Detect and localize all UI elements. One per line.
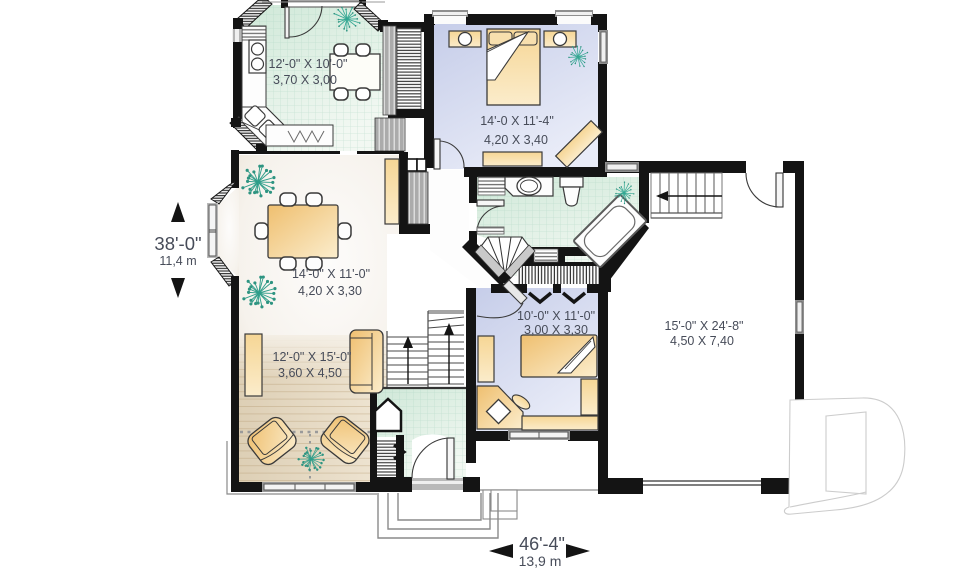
svg-text:10'-0" X 11'-0": 10'-0" X 11'-0" [517,309,595,323]
svg-text:11,4 m: 11,4 m [159,254,196,268]
svg-text:4,50 X 7,40: 4,50 X 7,40 [670,334,734,348]
svg-text:3,60 X 4,50: 3,60 X 4,50 [278,366,342,380]
svg-text:3,00 X 3,30: 3,00 X 3,30 [524,323,588,337]
svg-text:38'-0": 38'-0" [154,233,201,254]
svg-text:3,70 X 3,00: 3,70 X 3,00 [273,73,337,87]
svg-text:14'-0" X 11'-0": 14'-0" X 11'-0" [292,267,370,281]
svg-text:15'-0" X 24'-8": 15'-0" X 24'-8" [665,319,744,333]
svg-text:12'-0" X 15'-0": 12'-0" X 15'-0" [273,350,352,364]
svg-text:4,20 X 3,40: 4,20 X 3,40 [484,133,548,147]
svg-text:12'-0" X 10'-0": 12'-0" X 10'-0" [269,57,348,71]
svg-text:4,20 X 3,30: 4,20 X 3,30 [298,284,362,298]
svg-text:46'-4": 46'-4" [519,534,565,554]
svg-text:14'-0 X 11'-4": 14'-0 X 11'-4" [480,114,554,128]
svg-text:13,9 m: 13,9 m [519,553,562,569]
